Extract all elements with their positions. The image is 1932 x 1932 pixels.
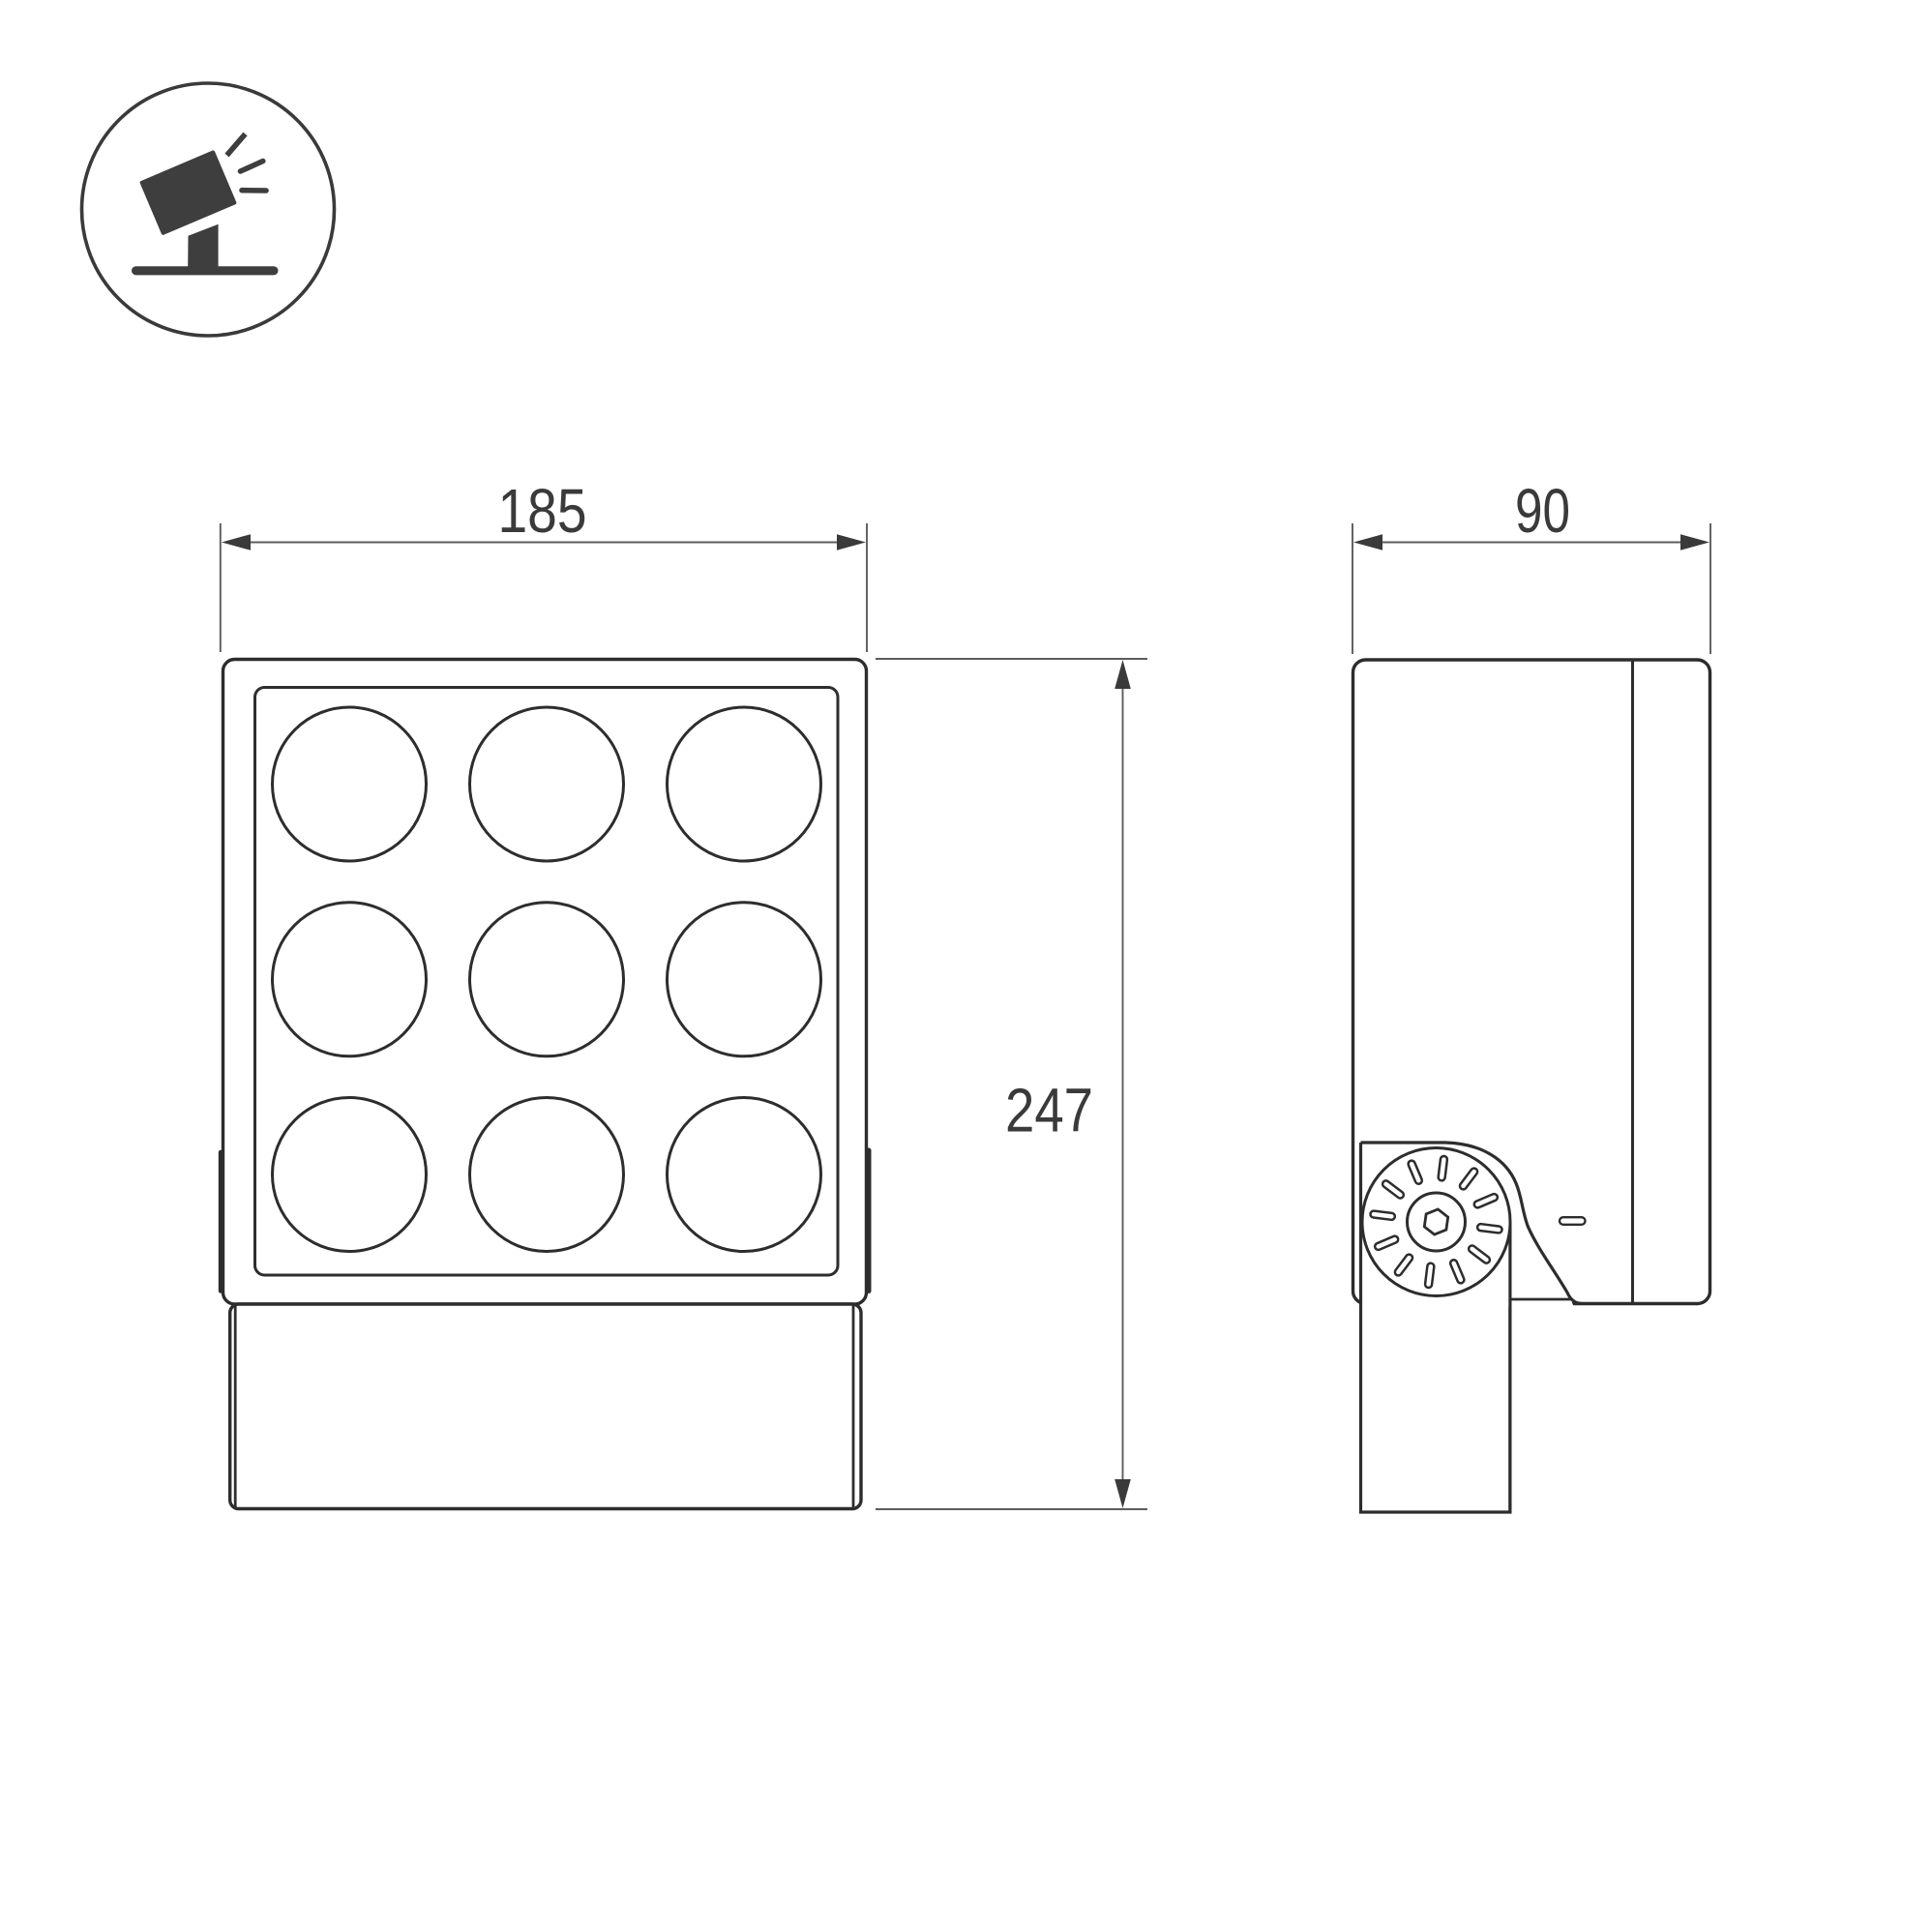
svg-text:247: 247 (1005, 1076, 1093, 1145)
svg-text:90: 90 (1515, 476, 1570, 546)
svg-text:185: 185 (498, 476, 587, 546)
